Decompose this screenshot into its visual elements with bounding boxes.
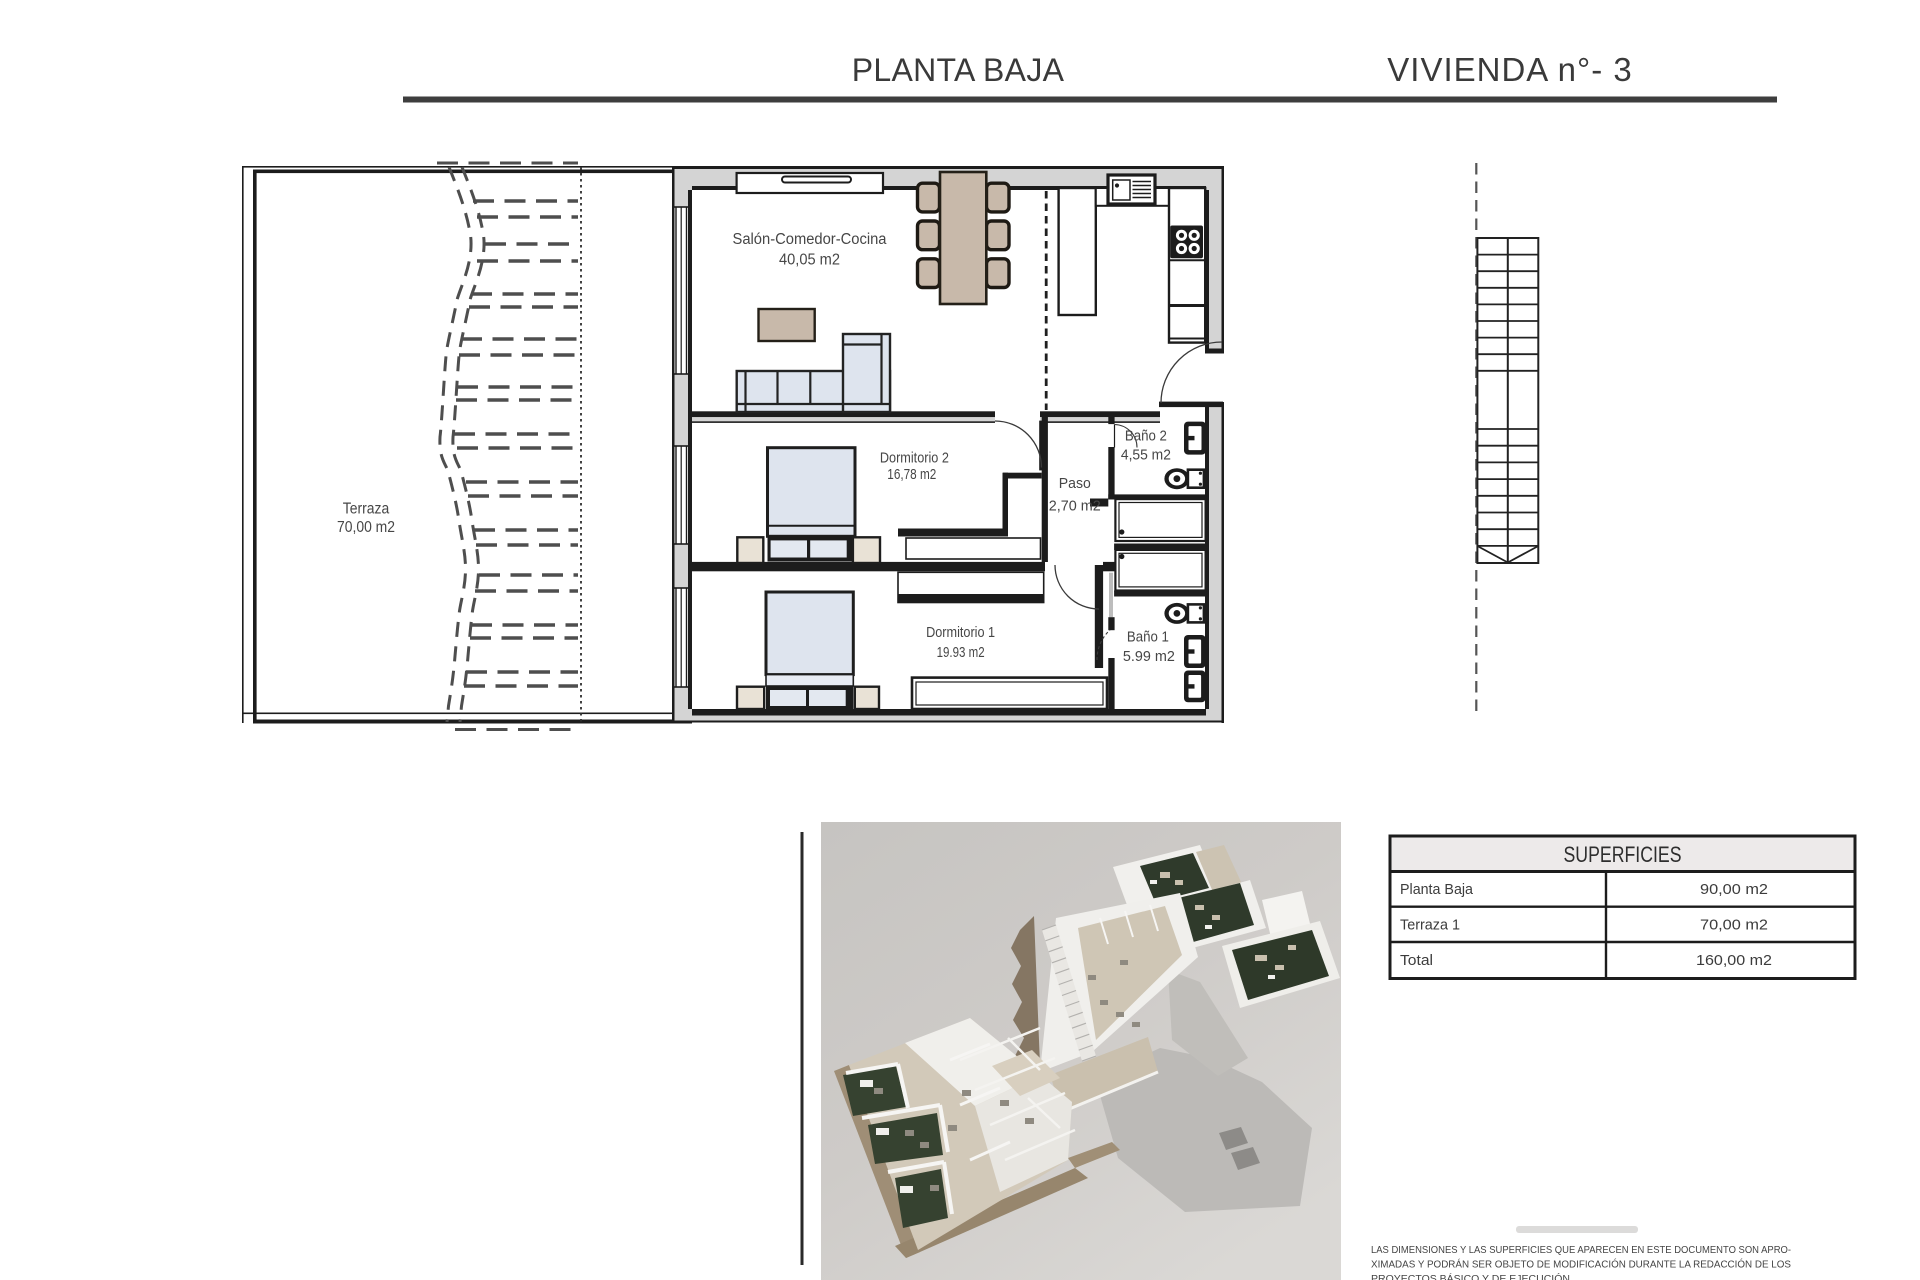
svg-text:5.99 m2: 5.99 m2 <box>1123 648 1175 665</box>
svg-text:VIVIENDA n°- 3: VIVIENDA n°- 3 <box>1387 51 1632 88</box>
svg-text:SUPERFICIES: SUPERFICIES <box>1564 842 1682 867</box>
svg-text:160,00 m2: 160,00 m2 <box>1696 952 1772 969</box>
svg-text:LAS DIMENSIONES Y LAS SUPERFIC: LAS DIMENSIONES Y LAS SUPERFICIES QUE AP… <box>1371 1244 1791 1256</box>
svg-text:Total: Total <box>1400 952 1433 969</box>
svg-text:2,70 m2: 2,70 m2 <box>1049 498 1101 515</box>
svg-text:19.93 m2: 19.93 m2 <box>937 644 985 661</box>
svg-text:PLANTA BAJA: PLANTA BAJA <box>852 52 1065 88</box>
svg-text:90,00 m2: 90,00 m2 <box>1700 881 1768 898</box>
svg-text:Terraza: Terraza <box>343 501 390 518</box>
svg-text:70,00 m2: 70,00 m2 <box>1700 917 1768 934</box>
svg-text:Dormitorio 2: Dormitorio 2 <box>880 450 949 467</box>
svg-text:Dormitorio 1: Dormitorio 1 <box>926 624 995 641</box>
svg-text:Baño 1: Baño 1 <box>1127 629 1169 646</box>
svg-text:Salón-Comedor-Cocina: Salón-Comedor-Cocina <box>733 231 887 248</box>
svg-text:4,55 m2: 4,55 m2 <box>1121 447 1171 464</box>
svg-text:Planta Baja: Planta Baja <box>1400 881 1474 898</box>
svg-text:XIMADAS Y PODRÁN SER OBJETO DE: XIMADAS Y PODRÁN SER OBJETO DE MODIFICAC… <box>1371 1258 1791 1271</box>
svg-text:70,00 m2: 70,00 m2 <box>337 519 395 536</box>
svg-text:PROYECTOS BÁSICO Y DE EJECUCIÓ: PROYECTOS BÁSICO Y DE EJECUCIÓN. <box>1371 1272 1573 1280</box>
svg-text:Terraza 1: Terraza 1 <box>1400 917 1460 934</box>
svg-text:Baño 2: Baño 2 <box>1125 428 1167 445</box>
svg-text:Paso: Paso <box>1059 475 1091 492</box>
svg-text:40,05 m2: 40,05 m2 <box>779 252 840 269</box>
svg-text:16,78 m2: 16,78 m2 <box>887 466 936 483</box>
